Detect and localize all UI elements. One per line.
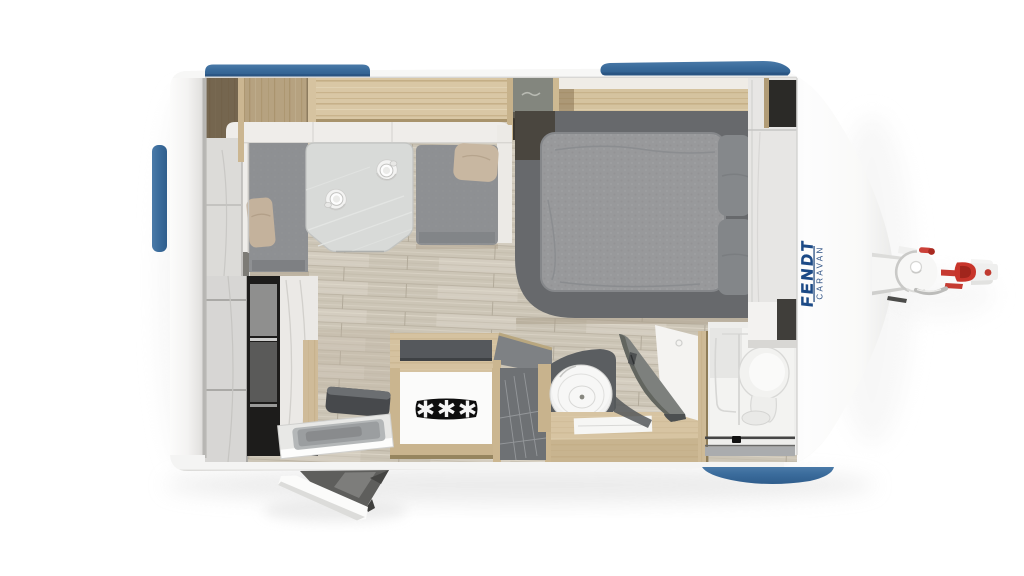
svg-text:CARAVAN: CARAVAN [816, 245, 825, 299]
